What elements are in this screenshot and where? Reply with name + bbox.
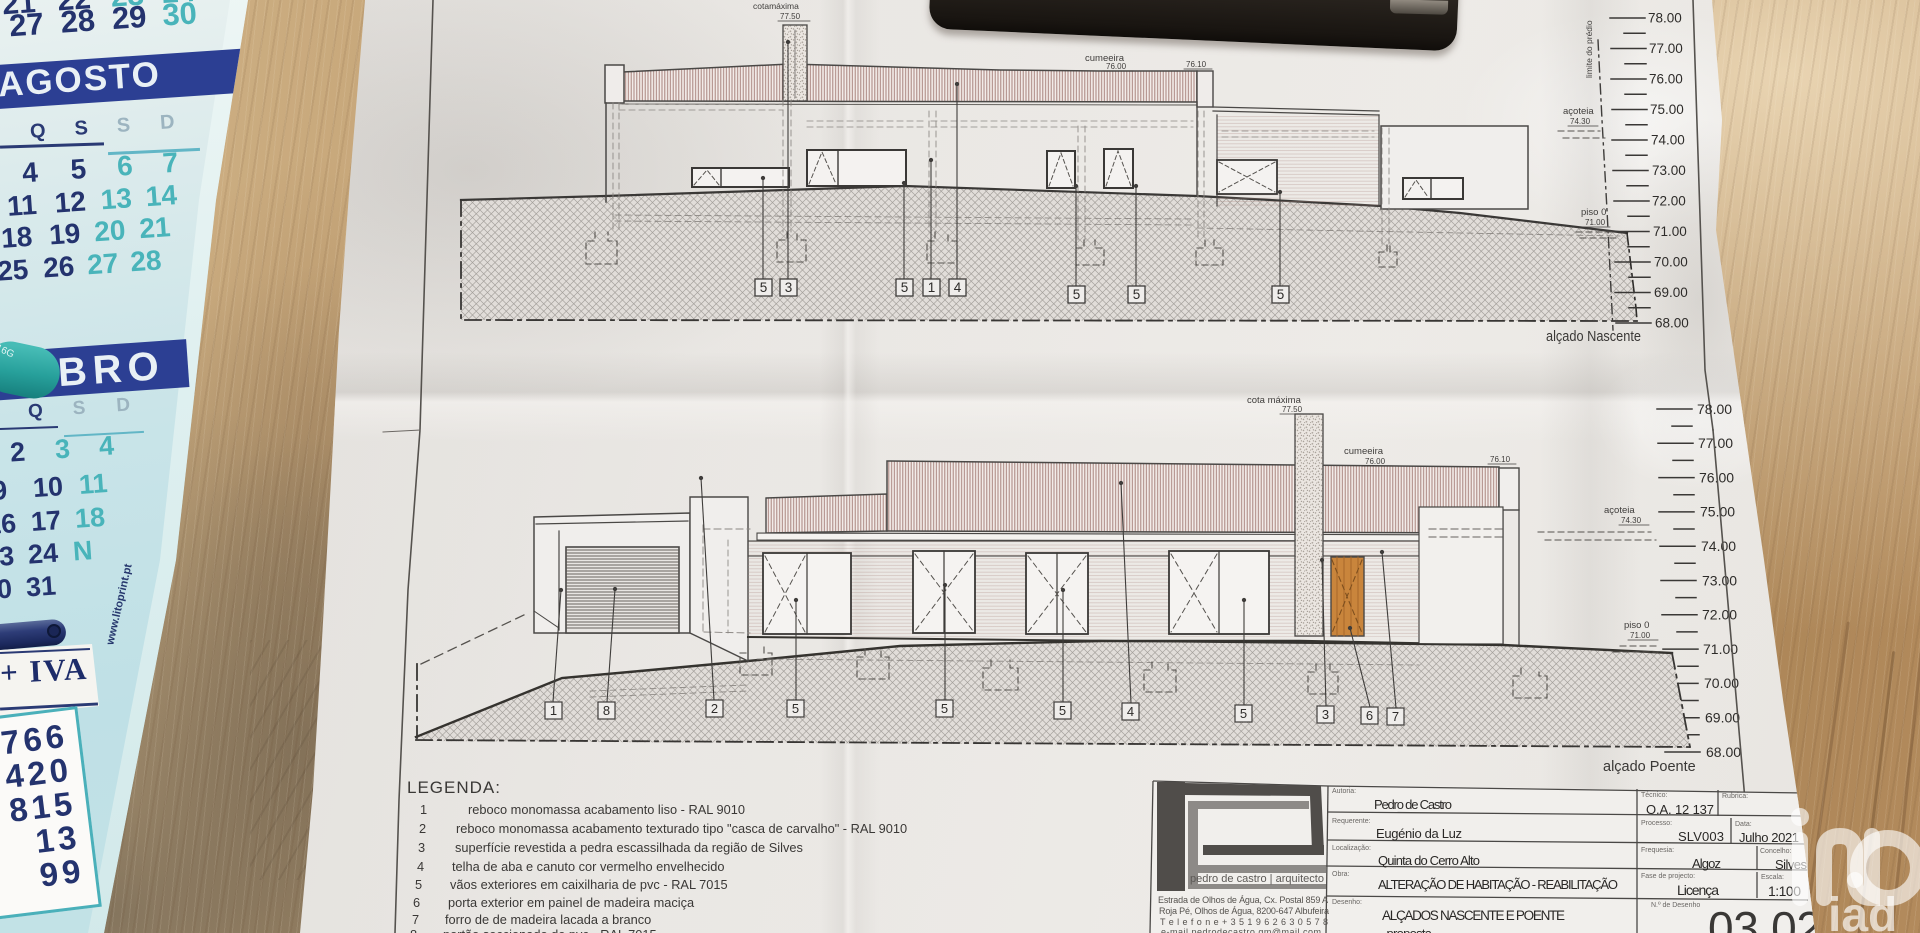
svg-text:iad: iad — [1828, 889, 1897, 933]
